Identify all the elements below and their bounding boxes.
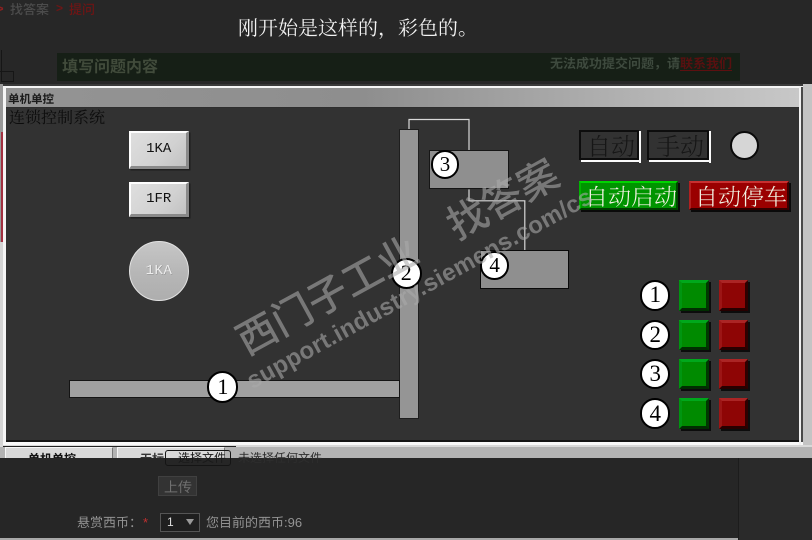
svg-text:support.industry.siemens.com/c: support.industry.siemens.com/cs: [242, 183, 597, 394]
